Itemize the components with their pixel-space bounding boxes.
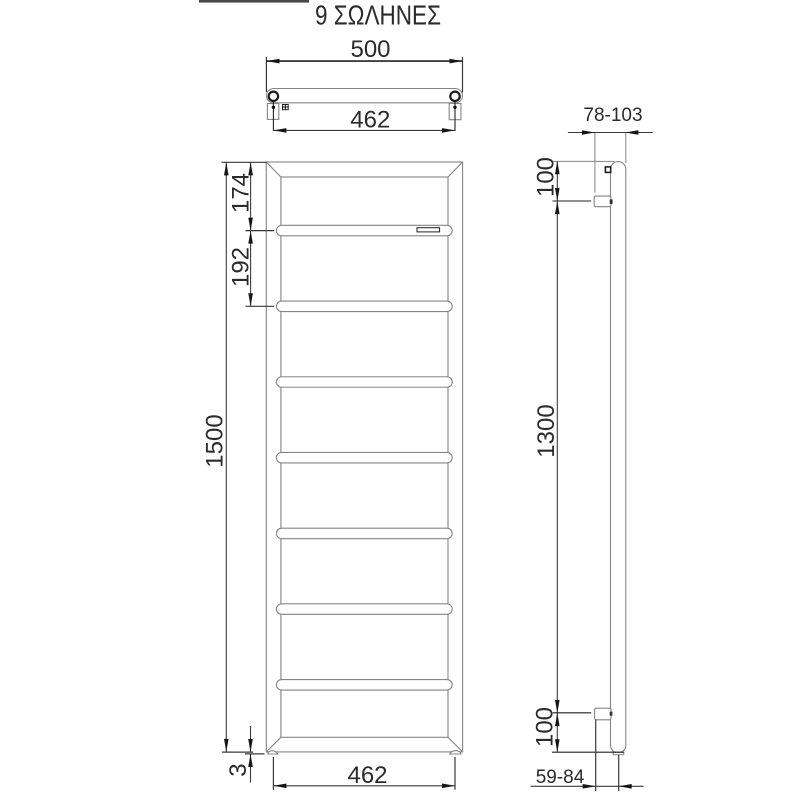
svg-text:100: 100 bbox=[532, 157, 559, 197]
svg-text:192: 192 bbox=[227, 247, 254, 287]
svg-text:3: 3 bbox=[225, 763, 252, 776]
svg-text:59-84: 59-84 bbox=[536, 767, 585, 788]
svg-text:78-103: 78-103 bbox=[583, 105, 642, 126]
svg-text:462: 462 bbox=[347, 762, 387, 789]
svg-text:1500: 1500 bbox=[201, 414, 228, 467]
svg-text:9 ΣΩΛΗΝΕΣ: 9 ΣΩΛΗΝΕΣ bbox=[315, 0, 441, 31]
svg-text:1300: 1300 bbox=[533, 404, 560, 457]
svg-text:500: 500 bbox=[350, 36, 390, 63]
svg-text:174: 174 bbox=[227, 173, 254, 213]
svg-text:100: 100 bbox=[532, 707, 559, 747]
svg-text:462: 462 bbox=[350, 107, 390, 134]
